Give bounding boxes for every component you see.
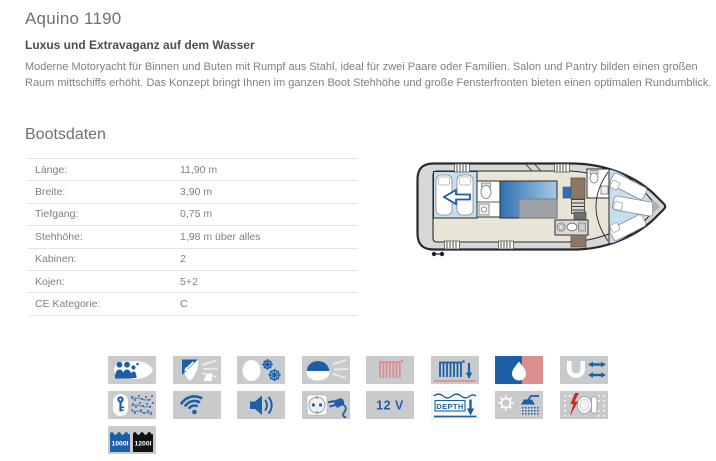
boat-floorplan [408,150,710,268]
depth-sounder-icon: DEPTH [431,391,479,419]
stairs [572,200,585,214]
crew-capacity-icon [108,356,156,384]
cabinet [571,178,585,199]
electric-toilet-icon [560,391,608,419]
spec-value: 1,98 m über alles [180,231,358,243]
page-subtitle: Luxus und Extravaganz auf dem Wasser [25,38,255,52]
spec-value: 11,90 m [180,164,358,176]
electronic-key-icon [108,391,156,419]
spec-label: Breite: [28,186,180,198]
feature-row-2: 12 V DEPTH [108,391,608,419]
spec-label: Stehhöhe: [28,231,180,243]
fuel-tank-label: 1200l [134,440,151,447]
spec-row-kojen: Kojen: 5+2 [28,270,358,292]
water-tank-icon: 1000l [110,432,130,452]
wifi-icon [173,391,221,419]
aft-bathroom [477,181,500,217]
deck-shower-icon [495,391,543,419]
boat-detail-page: Aquino 1190 Luxus und Extravaganz auf de… [0,0,716,461]
feature-row-1 [108,356,608,384]
power-12v-icon: 12 V [366,391,414,419]
spec-row-stehhoehe: Stehhöhe: 1,98 m über alles [28,225,358,247]
bow-thruster-icon [173,356,221,384]
salon-table [519,199,557,218]
spec-label: Tiefgang: [28,208,180,220]
bimini-top-icon [302,356,350,384]
twin-steering-icon [237,356,285,384]
bootsdaten-heading: Bootsdaten [25,126,106,144]
spec-label: CE Kategorie: [28,298,180,310]
warm-water-icon [495,356,543,384]
aft-cabin [434,172,478,219]
spec-value: 0,75 m [180,208,358,220]
spec-row-kabinen: Kabinen: 2 [28,248,358,270]
page-title: Aquino 1190 [25,9,121,29]
spec-value: 2 [180,253,358,265]
fuel-tank-icon: 1200l [133,432,153,452]
water-tank-label: 1000l [111,440,128,447]
spec-row-breite: Breite: 3,90 m [28,180,358,202]
salon [500,181,557,218]
warm-air-heating-icon [431,356,479,384]
swim-ladder [432,252,443,255]
spec-value: 5+2 [180,276,358,288]
spec-value: C [180,298,358,310]
feature-icons: 12 V DEPTH [108,356,608,460]
volt-label: 12 V [376,398,404,412]
tank-capacity-icon: 1000l 1200l [108,426,156,454]
radio-audio-icon [237,391,285,419]
spec-label: Länge: [28,164,180,176]
spec-label: Kabinen: [28,253,180,265]
bow-stern-thruster-icon [560,356,608,384]
spec-label: Kojen: [28,276,180,288]
spec-row-tiefgang: Tiefgang: 0,75 m [28,203,358,225]
heating-radiator-icon [366,356,414,384]
spec-row-laenge: Länge: 11,90 m [28,158,358,180]
depth-label: DEPTH [436,402,463,411]
feature-row-3: 1000l 1200l [108,426,608,454]
boat-spec-table: Länge: 11,90 m Breite: 3,90 m Tiefgang: … [28,158,358,316]
spec-value: 3,90 m [180,186,358,198]
page-description: Moderne Motoryacht für Binnen und Buten … [25,60,713,91]
spec-row-ce-kategorie: CE Kategorie: C [28,292,358,314]
cabinet-aft-of-vberth [571,235,586,247]
shore-power-icon [302,391,350,419]
